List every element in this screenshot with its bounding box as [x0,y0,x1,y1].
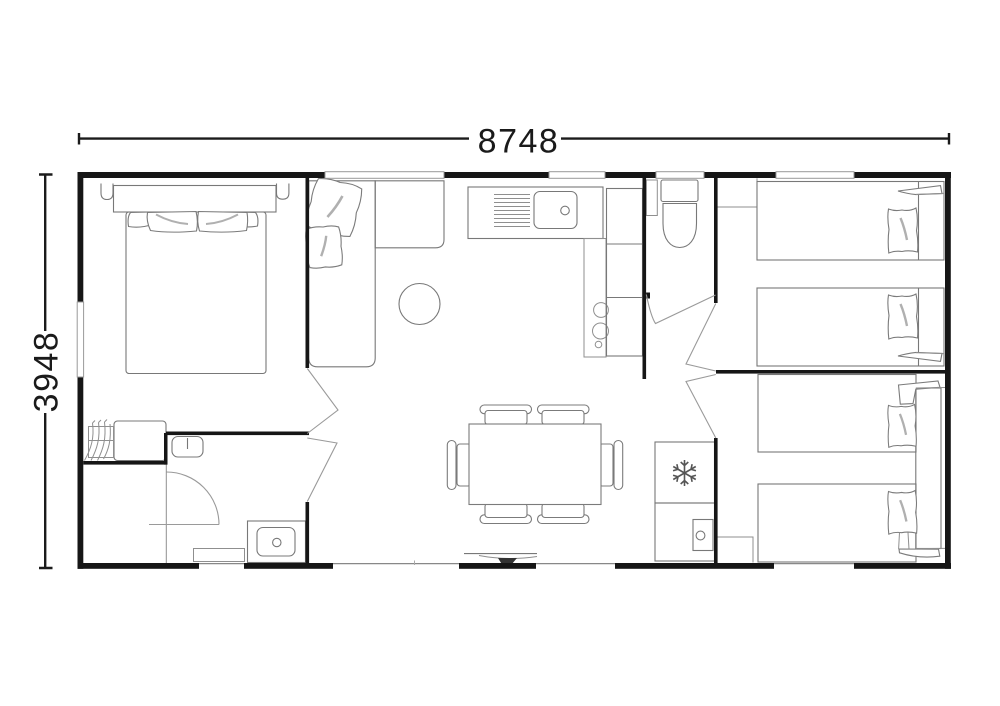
svg-text:3948: 3948 [28,331,66,413]
svg-text:8748: 8748 [478,122,560,160]
